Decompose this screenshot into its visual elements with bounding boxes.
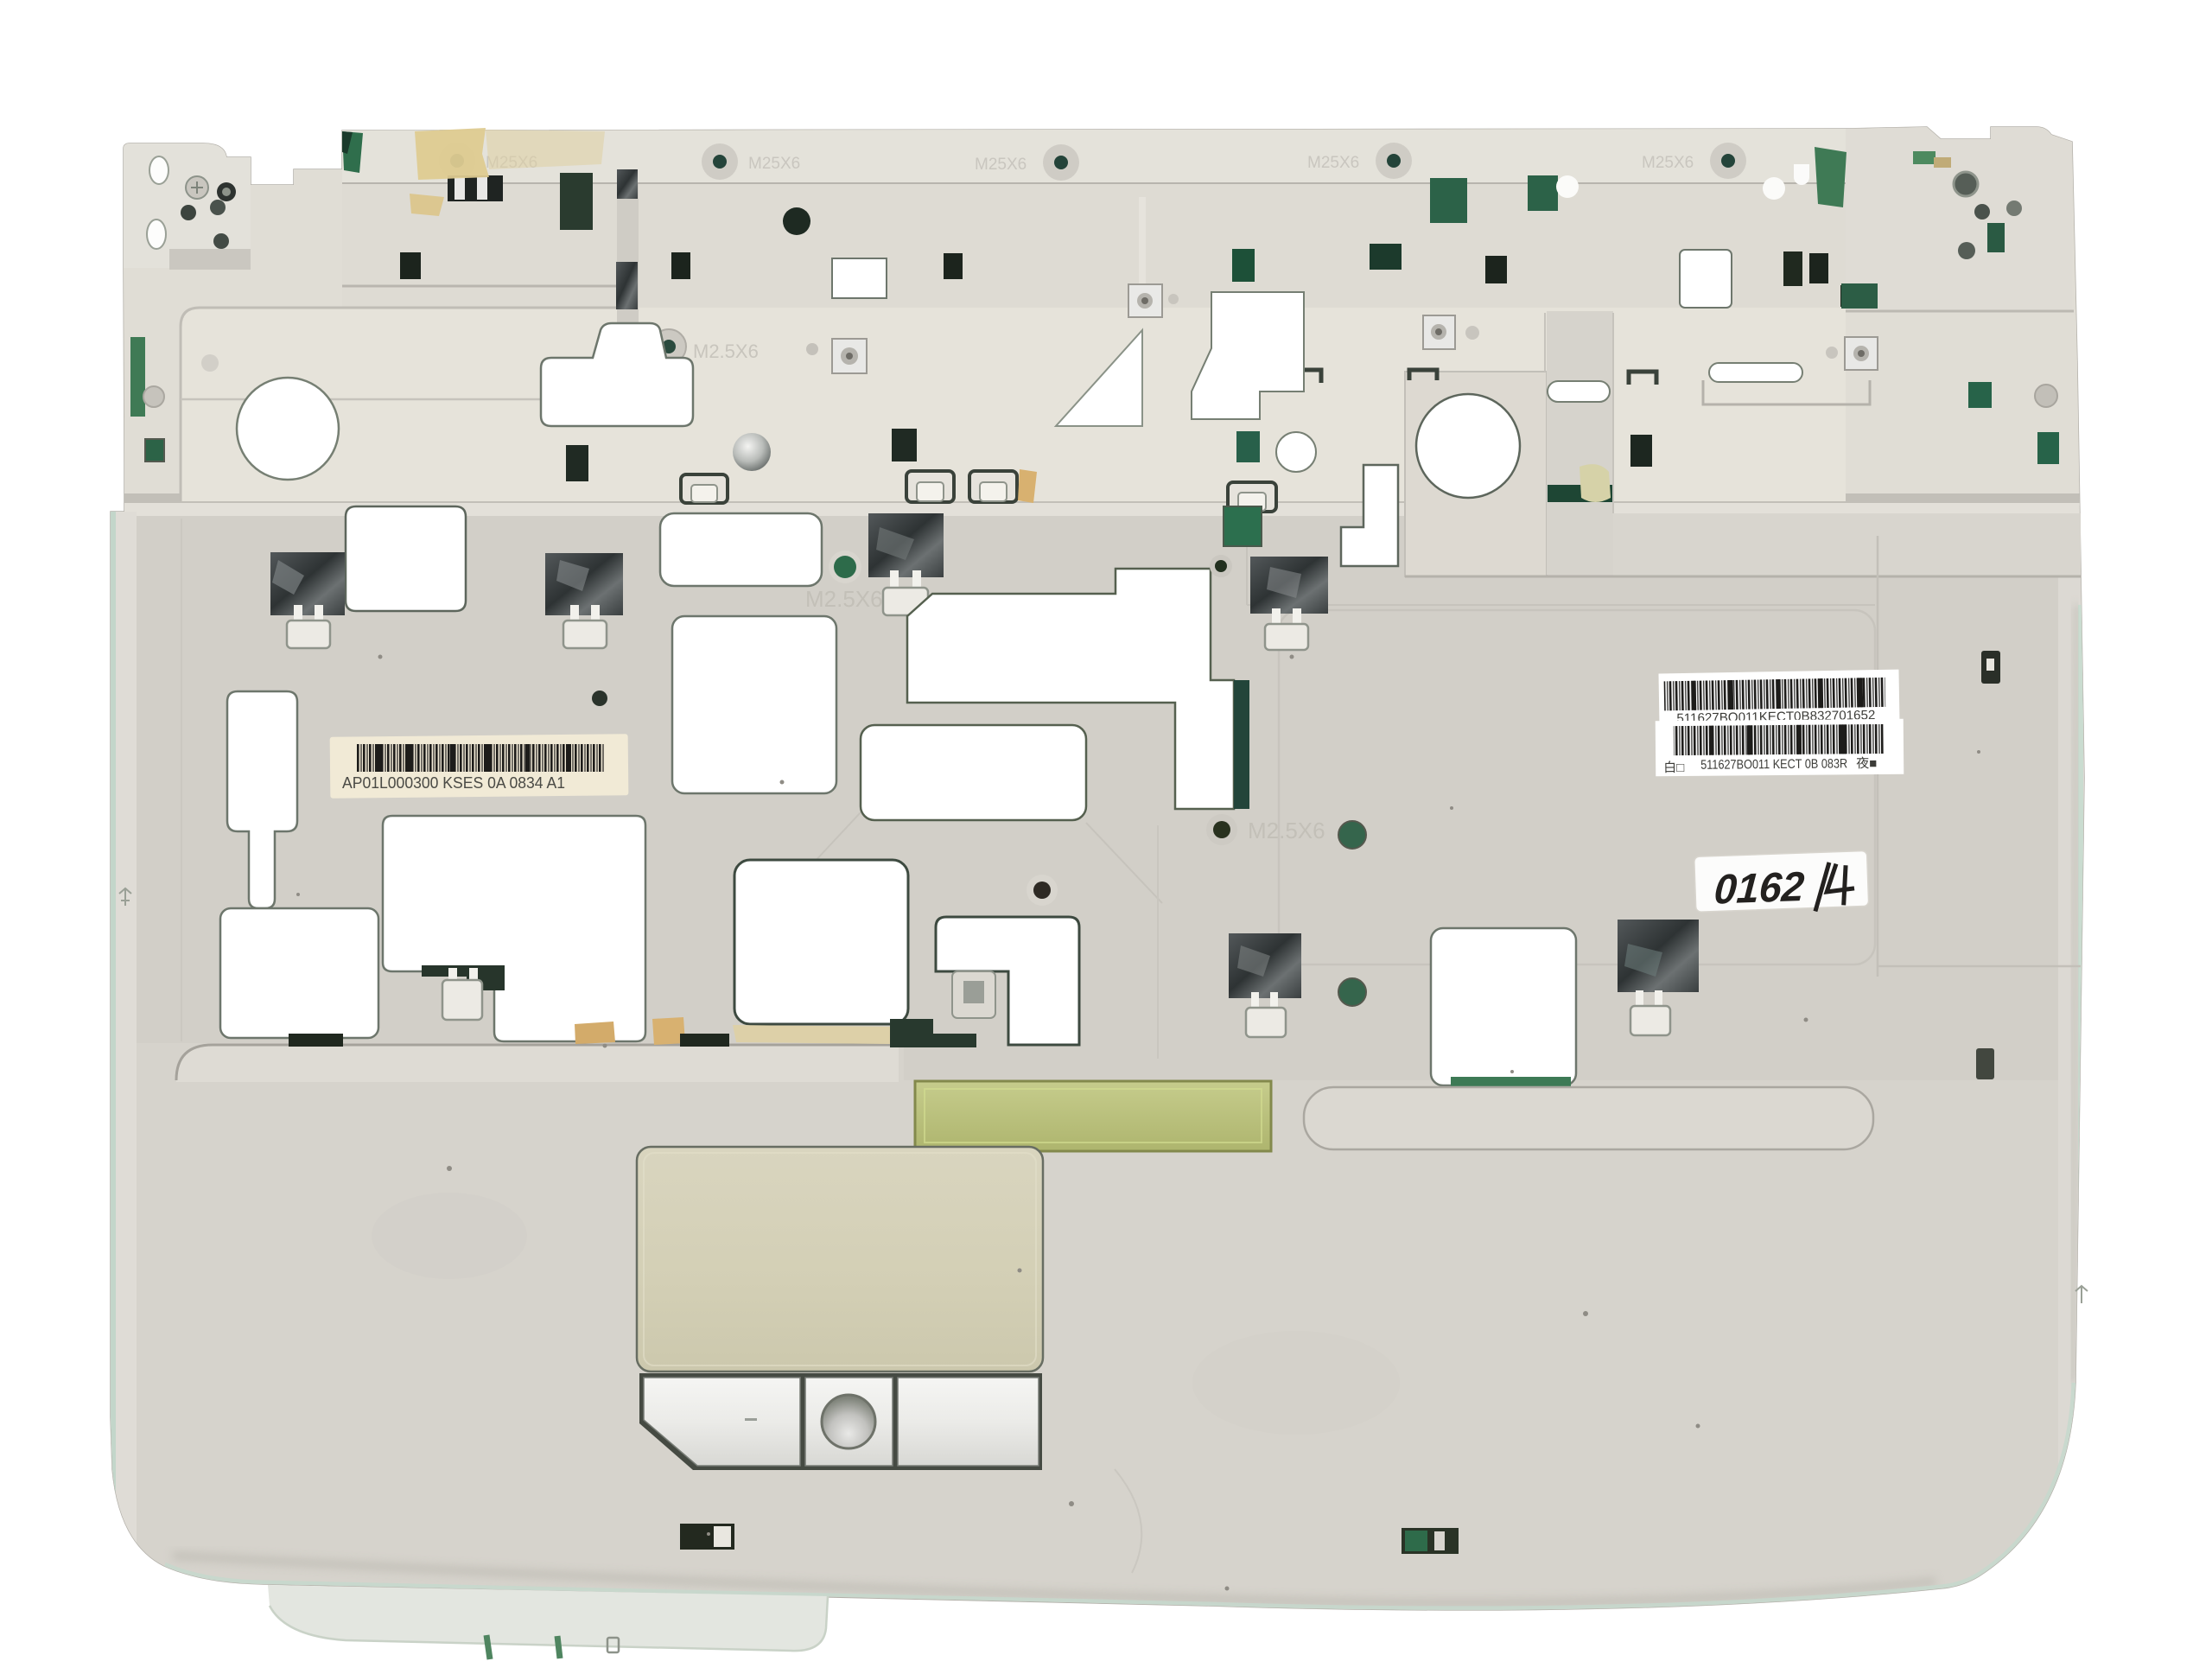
svg-text:M2.5X6: M2.5X6 [1248, 818, 1325, 843]
svg-text:M25X6: M25X6 [1307, 154, 1359, 172]
svg-text:M25X6: M25X6 [748, 155, 800, 173]
svg-text:M25X6: M25X6 [1642, 154, 1694, 172]
svg-text:M2.5X6: M2.5X6 [693, 341, 759, 362]
svg-text:0162: 0162 [1713, 863, 1806, 913]
svg-text:白□: 白□ [1663, 761, 1684, 775]
svg-text:夜■: 夜■ [1856, 756, 1877, 771]
svg-text:M25X6: M25X6 [975, 156, 1027, 174]
svg-text:M2.5X6: M2.5X6 [805, 586, 883, 612]
svg-text:511627BO011 KECT 0B 083R: 511627BO011 KECT 0B 083R [1700, 756, 1847, 772]
svg-text:AP01L000300 KSES 0A 0834 A1: AP01L000300 KSES 0A 0834 A1 [342, 774, 565, 792]
